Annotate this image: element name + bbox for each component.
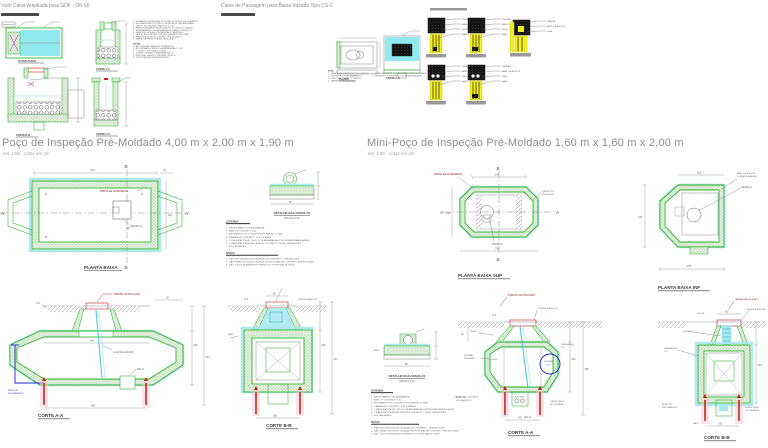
dim-label: 80 (405, 363, 408, 366)
junta-tipo-label: DE AJUSTE (542, 193, 554, 196)
dim-label: 160 (697, 172, 702, 175)
axis-label-b: B (125, 164, 128, 170)
axis-label-b: B (125, 265, 128, 271)
legend-line: 6 - 1 FIADA MACIÇA RECALÇADA DE CONCRETO… (226, 242, 302, 245)
tampao-label: TAMPÃO ARTICULADO (113, 293, 140, 296)
right-section-title: Mini-Poço de Inspeção Pré-Moldado 1,60 m… (367, 137, 684, 149)
planta-baixa-drawing: A A B B PARTE DE ALVENARIAS DEGRAU 400 2… (0, 163, 235, 275)
degrau-label: DEGRAU (544, 360, 554, 363)
legend-line: 5 - 1 FIADA MACIÇA DE TIJOLOS DE ARGAMAS… (371, 408, 455, 411)
anel-label: ANEL (471, 330, 477, 333)
detail-block-5: TAMPÃO ANEL DE AJUSTE LAJE BASE (466, 65, 521, 105)
notas-header: NOTAS (133, 42, 141, 45)
detail-label: LAJE (462, 28, 468, 31)
corte-bb-geometry (228, 288, 334, 418)
tl-title-underline (1, 13, 39, 16)
detail-label: BASE (462, 80, 468, 83)
tr-details-drawing: TAMPÃO ANEL DE AJUSTE LAJE BASE TAMPÃO A… (424, 6, 634, 114)
axis-label-a: A (440, 210, 444, 216)
legend-line: 4 - CAMADA DE CONCRETO SOB OS ANÉIS (371, 405, 417, 408)
nivel-escoamento-label: NÍVEL DE (8, 389, 18, 392)
degrau-label: DEGRAU (741, 186, 752, 189)
degrau-label: DEGRAU (492, 243, 503, 246)
tl-group-title: PV com Caixa Ampliada para GDF - DN 60 (0, 3, 90, 9)
ralo-label: RALO (524, 416, 531, 419)
tl-corte-cc-caption: CORTE C-C (96, 133, 110, 136)
tl-plan-caption: PLANTA BAIXA (18, 60, 37, 63)
dim-label: 190 (322, 344, 327, 347)
dim-label: 226 (687, 265, 692, 268)
ralo-label: RALO (137, 368, 144, 371)
detail-label: ANEL DE AJUSTE (547, 25, 566, 28)
tl-corte-aa-caption: CORTE A-A (96, 68, 110, 71)
drenagem-label: TIP. (664, 351, 668, 353)
note-line: 6 - VER DETALHES DE ASSENTAMENTO (133, 56, 170, 59)
legend-note: 3 - NÃO TODOS MONTAGEM E DRENOS DO PORTE… (371, 433, 440, 436)
detail-label: TAMPÃO (547, 20, 556, 23)
parte-alvenarias-label: PARTE DE ALVENARIAS (100, 190, 129, 193)
left-section-title: Poço de Inspeção Pré-Moldado 4,00 m x 2,… (2, 137, 294, 149)
left-section-scale: esc 1:50 - cotas em cm (3, 151, 50, 156)
detail-label: LAJE (502, 28, 508, 31)
nivel-escoamento-label: ESCOAMENTO (456, 399, 472, 402)
dim-label: 60 (725, 311, 728, 314)
dim-label: 200 (572, 358, 577, 361)
detail-label: BASE (502, 33, 508, 36)
detalhe-argolas-left-drawing: 80 DETALHE DAS ARGOLAS ESCALA 1:20 (260, 166, 328, 224)
tl-corte-cc-drawing: CORTE C-C (84, 74, 132, 138)
tl-corte-aa-geometry (96, 21, 128, 64)
legend-note: 2 - NÃO SERÃO MOLDES E VEDAÇÃO ESTRUTURA… (371, 430, 459, 433)
mini-corte-bb-drawing: TAMPÃO ARTICULADO JUNTA DE AJUSTE ALÇA D… (638, 288, 768, 448)
anel-ajuste-label: ANEL DE AJUSTE (737, 172, 756, 175)
tampao-label: TAMPÃO ARTICULADO (508, 294, 535, 297)
axis-label-a: A (1, 211, 5, 217)
dim-label: 60 (273, 293, 276, 296)
junta-cinta-label: JUNTA CINTA (550, 400, 564, 403)
mini-corte-bb-caption: CORTE B-B (704, 435, 730, 440)
notas-header: NOTAS (371, 421, 380, 424)
tm-notes-right: 1 - A GRELHA DEVERÁ SER ASSENTADA SOBRE … (372, 71, 430, 83)
dim-label: 200 (758, 364, 763, 367)
angle-label: 45° (126, 227, 130, 230)
mini-corte-aa-caption: CORTE A-A (508, 430, 534, 435)
detalhe-argolas-right-geometry (384, 329, 438, 366)
degrau-ferro-label: DE FERRO (464, 358, 476, 360)
planta-sup-drawing: A A B B PARTE DE ALVENARIAS JUNTA TIPO D… (428, 161, 568, 285)
na-label: N.A. (244, 298, 249, 301)
legend-line: 2 - ANEL DE CONCRETO S.A. (226, 230, 257, 233)
legend-line: 2 - ANEL DE CONCRETO S.A. (371, 399, 402, 402)
legend-header: LEGENDA (371, 390, 383, 393)
dim-label: 20 (163, 169, 166, 172)
planta-baixa-caption: PLANTA BAIXA (84, 265, 118, 270)
dim-label: 50 (461, 333, 464, 336)
detail-label: BASE (502, 80, 508, 83)
detalhe-scale: ESCALA 1:20 (399, 380, 415, 383)
dim-label: 20 (166, 297, 169, 300)
dim-label: 226 (495, 248, 500, 251)
dim-label: 160 (518, 417, 523, 420)
tl-plan-drawing: PLANTA BAIXA (4, 20, 68, 64)
tm-title-underline (221, 13, 255, 16)
right-section-scale: esc 1:50 - cotas em cm (368, 151, 415, 156)
dim-label: 215 (638, 216, 643, 219)
dim-label: 190 (194, 344, 199, 347)
junta-cinta-label: DE VEDAÇÃO (745, 409, 760, 412)
degrau-label: DEGRAU (683, 330, 693, 333)
corte-bb-caption: CORTE B-B (266, 423, 292, 428)
axis-label-a: A (185, 211, 189, 217)
legend-line: 7 - PISO ATERRADO (371, 414, 392, 417)
dim-label: 200 (168, 214, 173, 217)
tm-group-title: Caixa de Passagem para Bacia Vazada Tipo… (221, 3, 333, 9)
planta-sup-caption: PLANTA BAIXA SUP (458, 273, 502, 278)
anel-label: ANEL (228, 333, 234, 336)
axis-label-b: B (497, 257, 500, 263)
nivel-escoamento-label: NÍVEL DE (456, 396, 466, 399)
nivel-escoamento-label: ESCOAMENTO (662, 406, 678, 409)
legend-line: 4 - CAMADA DE CONCRETO SOB OS ANÉIS (226, 236, 272, 239)
dim-label: 400 (90, 168, 95, 172)
mini-corte-aa-drawing: TAMPÃO ARTICULADO JUNTA DE AJUSTE N.A. A… (448, 288, 610, 440)
dim-label: 247 (334, 358, 339, 361)
anel-label: ANEL (374, 349, 380, 352)
dim-label: 218 (446, 212, 451, 215)
tr-title-bar (430, 8, 467, 11)
tip-label: TIP. (546, 364, 550, 366)
axis-label-a: A (556, 210, 560, 216)
legend-line: 5 - 1 FIADA MACIÇA DE TIJOLOS DE ARGAMAS… (226, 239, 310, 242)
detail-label: BASE (462, 33, 468, 36)
legend-note: 2 - NÃO SERÃO MOLDES E VEDAÇÃO ESTRUTURA… (226, 261, 314, 264)
degrau-ferro-label: DEGRAU (464, 354, 474, 357)
corte-aa-geometry (10, 294, 206, 408)
tl-notes-block: 1 - ESCAVAÇÃO EM MATERIAL DE 1A CATEGORI… (133, 18, 203, 62)
ralo-label: RALO (693, 422, 699, 425)
legend-line: 7 - PISO ATERRADO (226, 245, 247, 248)
tl-corte-aa-drawing: CORTE A-A (84, 20, 132, 72)
detalhe-caption: DETALHE DAS ARGOLAS (274, 211, 311, 215)
legend-line: 3 - ENCHIMENTO DE CONCRETO FCK MÍNIMO 15… (371, 402, 428, 405)
corte-aa-caption: CORTE A-A (38, 413, 64, 418)
legend-left-block: LEGENDA 1 - REVESTIMENTO DE ARGAMASSA 2 … (226, 219, 376, 275)
dim-label: 250 (585, 368, 590, 371)
drenagem-label: DRENAGEM (561, 343, 574, 346)
nivel-escoamento-label: NÍVEL DE (662, 403, 672, 406)
legend-line: 1 - REVESTIMENTO DE ARGAMASSA (371, 396, 410, 399)
corte-bb-drawing: N.A. JUNTA DE AJUSTE ANEL 60 190 247 260… (226, 286, 360, 432)
dim-label: 460 (91, 405, 96, 408)
notas-header: NOTA: (328, 70, 334, 73)
na-label: N.A. (36, 302, 41, 305)
tl-plan-geometry (2, 22, 62, 58)
note-line: 4 - TAMPA EM GRELHA DE AÇO (328, 79, 357, 82)
legend-line: 3 - ENCHIMENTO DE CONCRETO FCK MÍNIMO 15… (226, 233, 283, 236)
detail-block-3: TAMPÃO ANEL DE AJUSTE LAJE (510, 20, 566, 57)
dim-label: 400 (90, 340, 95, 343)
axis-label-b: B (497, 166, 500, 172)
alca-label: ALÇA (698, 312, 704, 315)
legend-line: 6 - 1 FIADA MACIÇA RECALÇADA DE CONCRETO… (371, 411, 447, 414)
dim-label: 237 (206, 356, 211, 359)
legend-note: 1 - NÃO USE IN-MOLDE DE VEDAÇÃO DE CONCR… (226, 258, 300, 261)
parte-alvenarias-label: PARTE DE ALVENARIAS (434, 173, 463, 176)
legend-note: 3 - NÃO TODOS MONTAGEM E DRENOS DO PORTE… (226, 264, 295, 267)
dim-label: 160 (718, 423, 723, 426)
legend-note: 1 - NÃO USE IN-MOLDE DE VEDAÇÃO DE CONCR… (371, 427, 445, 430)
corte-aa-drawing: N.A. TAMPÃO ARTICULADO GUIA DE ACESSO RA… (0, 286, 232, 426)
junta-cinta-label: JUNTA CINTA (745, 406, 759, 409)
detail-label: LAJE (462, 75, 468, 78)
detail-label: LAJE (502, 75, 508, 78)
detail-label: TAMPÃO (502, 65, 511, 68)
tampao-label: TAMPÃO ARTICULADO (735, 298, 759, 301)
legend-line: 1 - REVESTIMENTO DE ARGAMASSA (226, 227, 265, 230)
drawing-sheet: PV com Caixa Ampliada para GDF - DN 60 P… (0, 0, 768, 448)
junta-tipo-label: JUNTA TIPO (542, 190, 555, 193)
note-line: 2 - DIMENSÕES CONFORME O TIPO DA BACIA V… (372, 74, 422, 77)
detalhe-argolas-right-drawing: ANEL 80 DETALHE DAS ARGOLAS ESCALA 1:20 (366, 326, 446, 388)
anel-ajuste-label: COM ARGAMASSA (737, 175, 757, 178)
legend-header: LEGENDA (226, 221, 238, 224)
detail-label: ANEL DE AJUSTE (502, 70, 521, 73)
detail-label: TAMPÃO (502, 18, 511, 21)
drenagem-label: DRENAGEM (664, 347, 677, 350)
planta-inf-drawing: ANEL DE AJUSTE COM ARGAMASSA DEGRAU 160 … (613, 161, 768, 301)
mini-corte-aa-geometry (458, 297, 602, 420)
dim-label: 80 (289, 201, 292, 204)
note-line: 9 - TAMPÃO DE FERRO FUNDIDO ARTICULADO (133, 38, 176, 41)
detalhe-argolas-left-geometry (270, 170, 320, 204)
detail-label: LAJE (547, 30, 553, 33)
detalhe-caption: DETALHE DAS ARGOLAS (389, 374, 426, 378)
planta-inf-geometry (643, 175, 741, 271)
junta-cinta-label: DE VEDAÇÃO (550, 403, 565, 406)
tl-corte-bb-geometry (8, 67, 84, 130)
junta-ajuste-label: JUNTA DE AJUSTE (298, 298, 318, 301)
na-label: N.A. (492, 314, 497, 317)
tl-corte-cc-geometry (92, 78, 131, 126)
degrau-label: DEGRAU (131, 225, 142, 228)
junta-ajuste-label: JUNTA DE AJUSTE (746, 308, 766, 311)
junta-ajuste-label: JUNTA DE AJUSTE (538, 307, 558, 310)
tl-corte-bb-drawing: CORTE B-B (0, 66, 88, 138)
drenagem-label: TIP. (561, 347, 565, 349)
dim-label: 160 (495, 174, 500, 177)
nivel-escoamento-label: ESCOAMENTO (8, 392, 24, 395)
guia-acesso-label: GUIA DE ACESSO (113, 351, 134, 354)
notas-header: NOTAS (226, 252, 235, 255)
dim-label: 260 (273, 415, 278, 418)
planta-baixa-geometry (0, 169, 190, 263)
tm-notes-left: NOTA: 1 - CAIXA EM ALVENARIA DE TIJOLO M… (328, 68, 374, 90)
